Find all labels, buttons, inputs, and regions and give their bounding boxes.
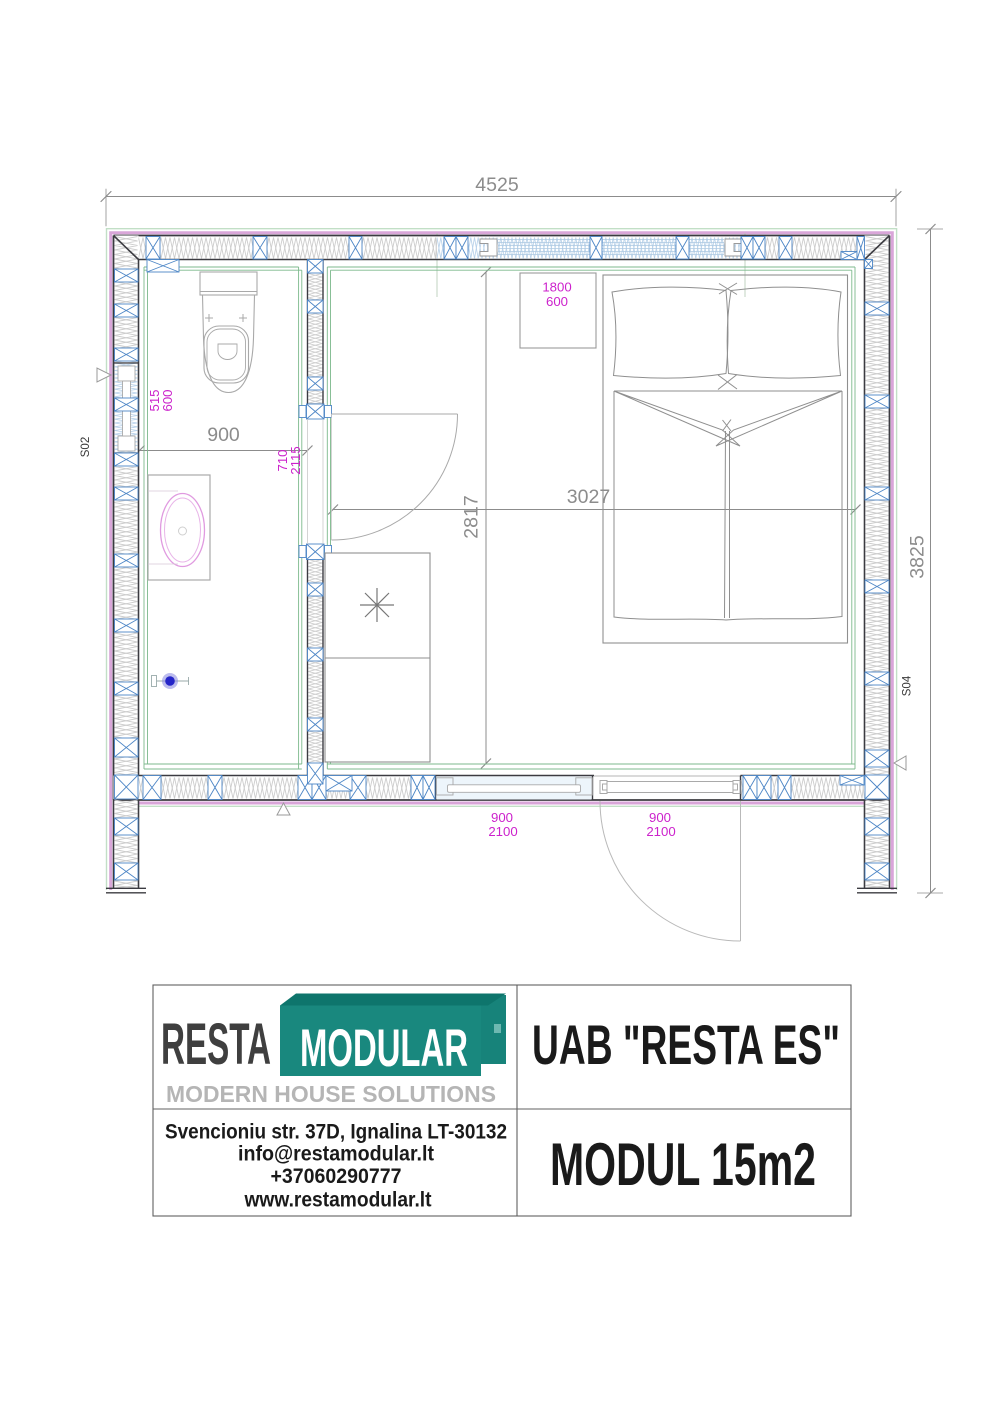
svg-text:MODUL 15m2: MODUL 15m2 (550, 1131, 816, 1198)
svg-text:MODULAR: MODULAR (300, 1019, 468, 1078)
svg-text:Svencioniu str. 37D, Ignalina: Svencioniu str. 37D, Ignalina LT-30132 (165, 1121, 507, 1144)
svg-text:900: 900 (649, 810, 671, 825)
svg-text:S02: S02 (80, 437, 92, 457)
svg-text:MODERN HOUSE SOLUTIONS: MODERN HOUSE SOLUTIONS (166, 1081, 496, 1107)
svg-text:1800: 1800 (542, 280, 571, 295)
svg-text:3825: 3825 (907, 535, 929, 579)
svg-text:2100: 2100 (488, 824, 517, 839)
svg-text:S04: S04 (902, 675, 914, 696)
svg-text:3027: 3027 (567, 486, 610, 508)
svg-text:+37060290777: +37060290777 (271, 1165, 402, 1188)
svg-text:RESTA: RESTA (161, 1012, 271, 1077)
svg-text:900: 900 (207, 424, 240, 446)
svg-text:www.restamodular.lt: www.restamodular.lt (244, 1188, 432, 1211)
svg-text:600: 600 (160, 389, 175, 411)
svg-text:2115: 2115 (288, 446, 303, 474)
svg-text:2817: 2817 (461, 495, 483, 538)
svg-text:info@restamodular.lt: info@restamodular.lt (238, 1143, 434, 1166)
svg-text:2100: 2100 (646, 824, 675, 839)
svg-text:4525: 4525 (475, 174, 519, 196)
svg-text:UAB "RESTA ES": UAB "RESTA ES" (532, 1013, 840, 1076)
svg-text:600: 600 (546, 294, 568, 309)
svg-text:900: 900 (491, 810, 513, 825)
